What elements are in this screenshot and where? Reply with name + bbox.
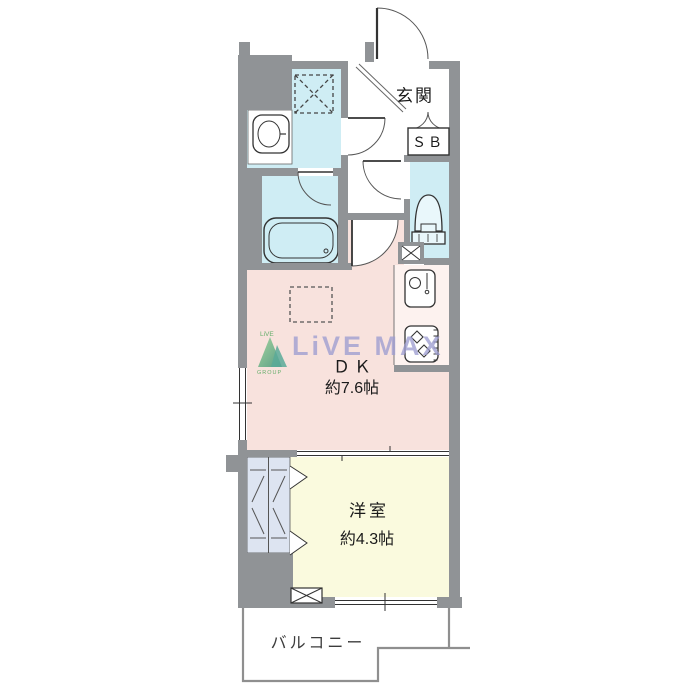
wall-segment <box>365 42 374 62</box>
toilet-door <box>363 161 401 199</box>
shoe-box-label: ＳＢ <box>412 132 444 152</box>
balcony-label: バルコニー <box>271 629 366 653</box>
wall-segment <box>341 61 348 118</box>
wall-segment <box>238 263 352 270</box>
pipe-space-x-icon <box>398 242 424 264</box>
wall-segment <box>437 597 462 608</box>
wall-segment <box>238 553 293 608</box>
pipe-space-x-icon <box>291 588 322 603</box>
dining-kitchen-size: 約7.6帖 <box>325 374 379 398</box>
wall-segment <box>238 450 297 457</box>
wall-segment <box>394 365 449 372</box>
wall-segment <box>226 455 238 472</box>
wall-segment <box>341 213 410 220</box>
kitchen-sink-icon <box>405 270 435 307</box>
wall-segment <box>449 61 460 608</box>
wall-segment <box>424 258 449 265</box>
wall-segment <box>404 155 449 162</box>
washbasin-icon <box>248 110 292 164</box>
floorplan-canvas: 玄関 ＳＢ ＤＫ 約7.6帖 洋室 約4.3帖 バルコニー LiVE GROUP… <box>0 0 700 700</box>
floorplan-drawing <box>0 0 700 700</box>
gas-stove-icon <box>405 326 438 362</box>
bathtub-icon <box>264 218 338 263</box>
wall-segment <box>404 199 410 243</box>
wall-segment <box>238 61 345 69</box>
western-room-size: 約4.3帖 <box>340 525 394 549</box>
western-room-label: 洋室 <box>349 497 389 522</box>
entrance-label: 玄関 <box>396 82 434 107</box>
entrance-door <box>377 8 428 59</box>
wall-segment <box>238 168 262 267</box>
washroom-door <box>348 118 385 155</box>
